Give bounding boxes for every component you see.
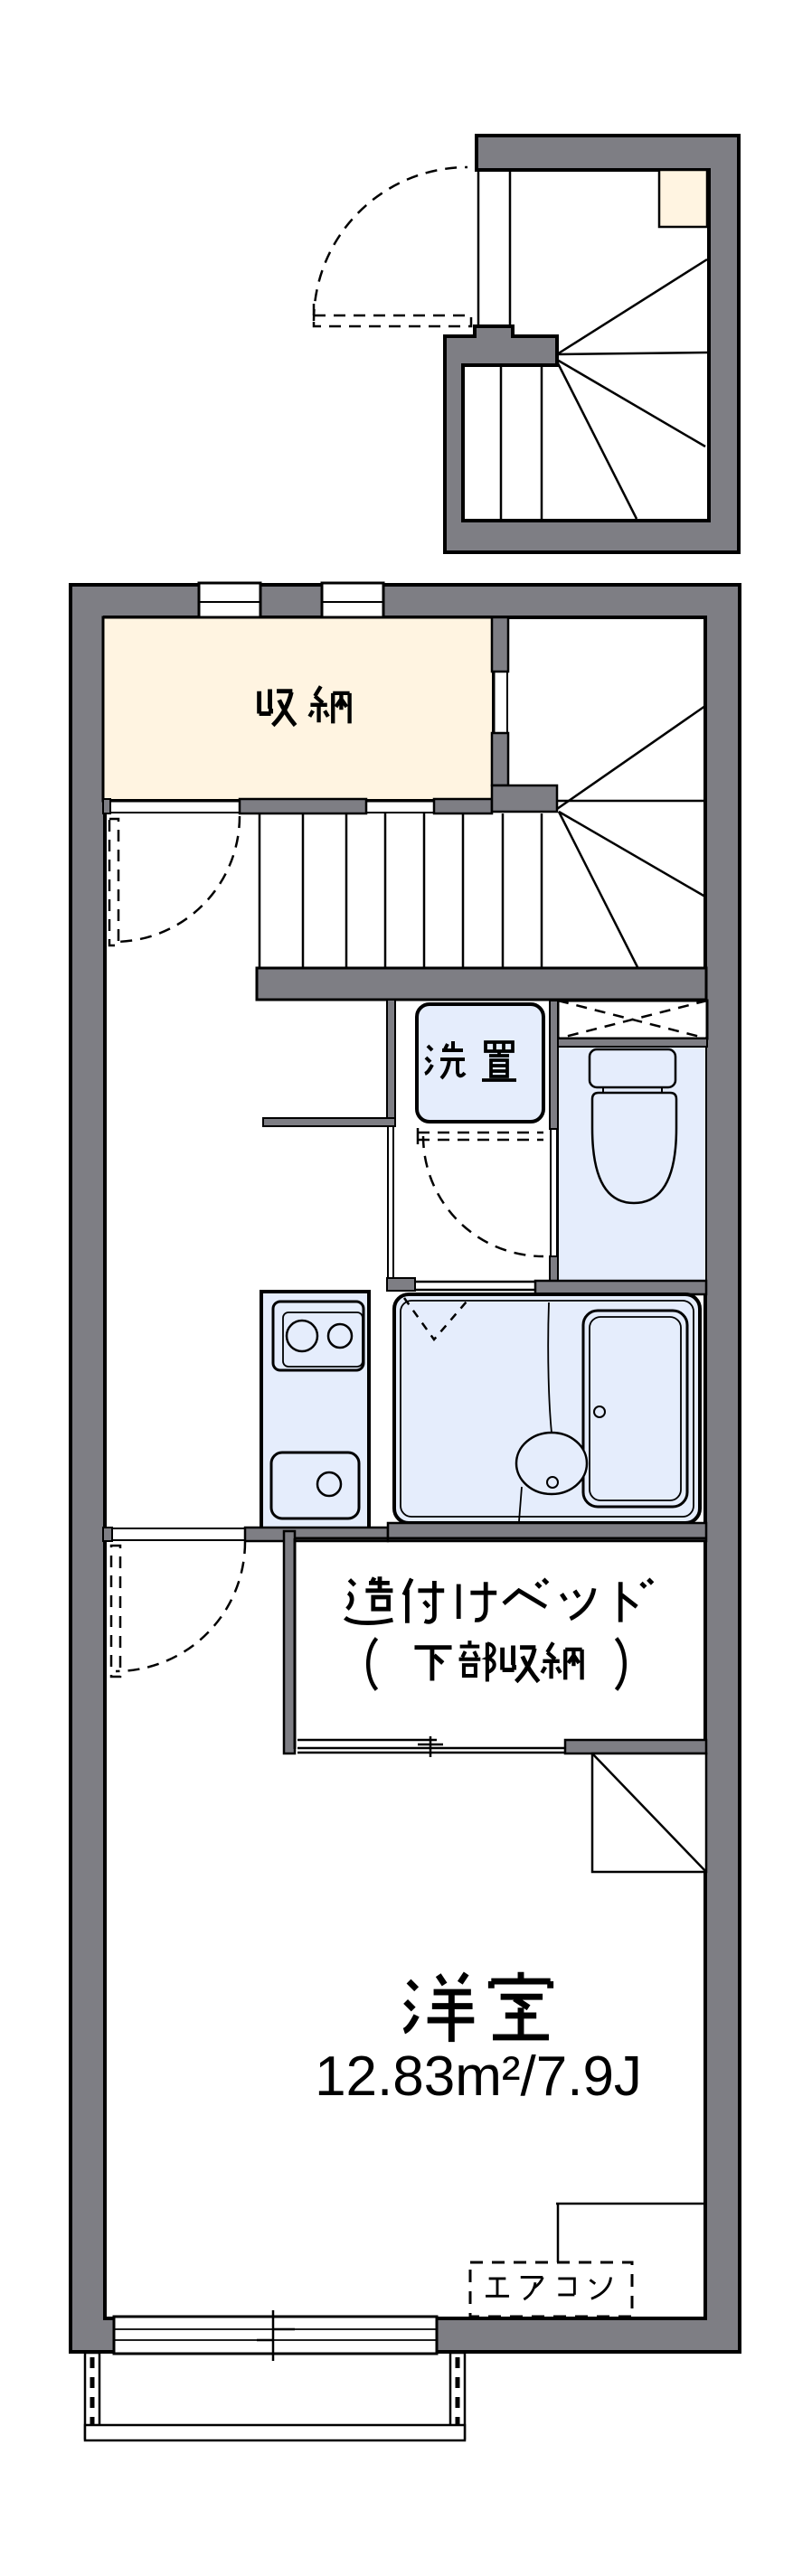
svg-text:12.83m²/7.9J: 12.83m²/7.9J (315, 2045, 642, 2108)
